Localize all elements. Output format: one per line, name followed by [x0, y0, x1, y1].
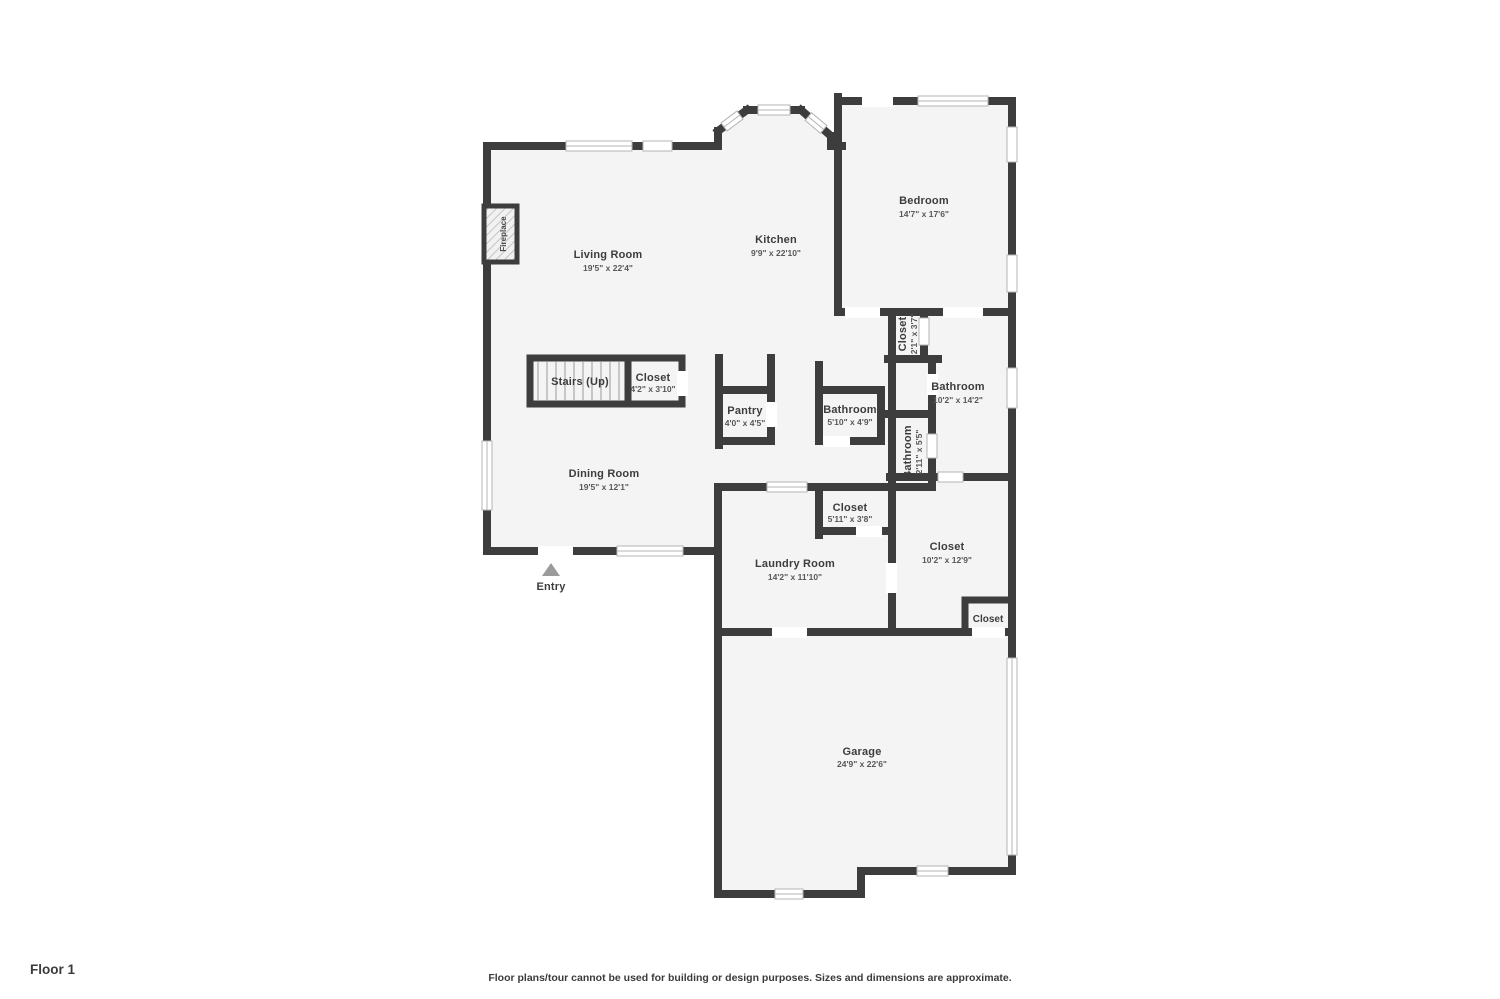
- room-name: Laundry Room: [755, 558, 835, 570]
- room-garage: Garage 24'9" x 22'6": [837, 746, 887, 769]
- room-name: Dining Room: [569, 468, 640, 480]
- room-name: Closet: [930, 541, 965, 553]
- floor-plan-page: Fireplace Entry Living Room 19'5" x 22'4…: [0, 0, 1500, 999]
- room-name: Closet: [833, 502, 868, 514]
- room-stairs-closet: Closet 4'2" x 3'10": [630, 372, 675, 394]
- room-garage-closet: Closet: [973, 614, 1004, 625]
- room-dims: 14'7" x 17'6": [899, 209, 949, 219]
- entry-arrow-icon: [542, 563, 560, 576]
- room-dims: 19'5" x 22'4": [583, 263, 633, 273]
- room-dims: 24'9" x 22'6": [837, 759, 887, 769]
- room-dims: 14'2" x 11'10": [768, 572, 822, 582]
- room-name: Kitchen: [755, 234, 797, 246]
- room-pantry: Pantry 4'0" x 4'5": [725, 405, 765, 428]
- fireplace-icon: Fireplace: [484, 206, 517, 262]
- room-name: Bedroom: [899, 195, 949, 207]
- room-name: Stairs (Up): [551, 376, 609, 388]
- room-dims: 10'2" x 12'9": [922, 555, 972, 565]
- disclaimer-text: Floor plans/tour cannot be used for buil…: [0, 972, 1500, 984]
- room-dims: 2'11" x 5'5": [914, 430, 924, 475]
- room-name: Garage: [842, 746, 881, 758]
- room-stairs: Stairs (Up): [551, 376, 609, 388]
- room-wc-bathroom: Bathroom 2'11" x 5'5": [902, 425, 924, 479]
- room-name: Closet: [897, 316, 909, 351]
- room-name: Pantry: [727, 405, 763, 417]
- room-dims: 2'1" x 3'7": [909, 314, 919, 354]
- room-hall-closet: Closet 2'1" x 3'7": [897, 314, 919, 354]
- room-dims: 5'10" x 4'9": [827, 417, 872, 427]
- room-dims: 4'0" x 4'5": [725, 418, 765, 428]
- room-dims: 9'9" x 22'10": [751, 248, 801, 258]
- room-dims: 5'11" x 3'8": [828, 514, 873, 524]
- entry-marker: Entry: [536, 563, 566, 593]
- floor-plan-canvas: Fireplace Entry Living Room 19'5" x 22'4…: [0, 0, 1500, 999]
- room-name: Bathroom: [931, 381, 985, 393]
- entry-label: Entry: [536, 581, 566, 593]
- room-small-bathroom: Bathroom 5'10" x 4'9": [823, 404, 877, 427]
- room-name: Closet: [636, 372, 671, 384]
- room-dims: 4'2" x 3'10": [630, 384, 675, 394]
- room-name: Closet: [973, 614, 1004, 625]
- fireplace-label: Fireplace: [499, 216, 508, 252]
- room-name: Bathroom: [902, 425, 914, 479]
- room-name: Living Room: [574, 249, 643, 261]
- room-name: Bathroom: [823, 404, 877, 416]
- room-dims: 10'2" x 14'2": [933, 395, 983, 405]
- floor-fill-layer: [487, 101, 1012, 894]
- room-dims: 19'5" x 12'1": [579, 482, 629, 492]
- room-laundry-closet: Closet 5'11" x 3'8": [828, 502, 873, 524]
